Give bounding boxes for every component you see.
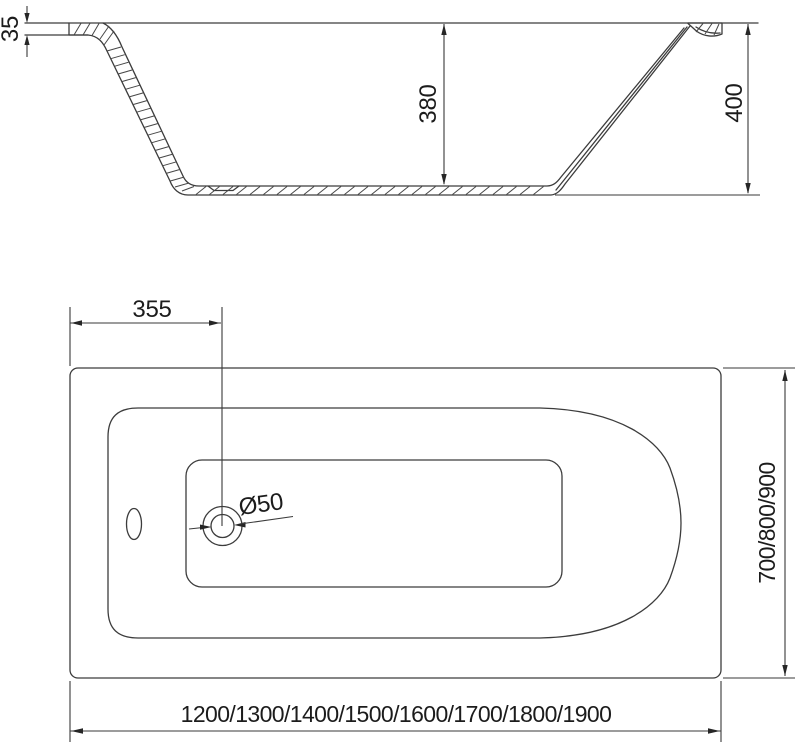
dim-length-arrow-right [708, 728, 720, 734]
dim-rim-thickness: 35 [0, 6, 30, 57]
dim-355-arrow-right [209, 320, 220, 325]
dim-overall-height: 400 [721, 24, 751, 194]
bathtub-drawing-svg: 35 380 400 [0, 0, 800, 748]
dim-400-arrow-up [745, 24, 750, 35]
dim-400-arrow-down [745, 183, 750, 194]
section-bottom-hatch [196, 187, 544, 195]
drain-arrow-right [234, 522, 246, 528]
dim-drain-offset: 355 [70, 296, 221, 366]
drain-arrow-left [200, 525, 212, 530]
dim-35-arrow-up [24, 35, 29, 45]
dim-35-arrow-down [24, 13, 29, 23]
section-outer-profile [69, 23, 690, 195]
dim-diameter-label: Ø50 [237, 488, 285, 521]
section-view: 35 380 400 [0, 6, 760, 195]
dim-380-arrow-down [441, 174, 446, 185]
dim-35-label: 35 [0, 16, 24, 42]
section-drain-recess [208, 186, 239, 191]
plan-inner-rim [108, 408, 681, 638]
dim-drain-diameter: Ø50 [189, 488, 293, 530]
dim-length-label: 1200/1300/1400/1500/1600/1700/1800/1900 [181, 701, 612, 727]
overflow-hole [127, 509, 142, 540]
dim-380-arrow-up [441, 24, 446, 35]
dim-380-label: 380 [415, 84, 442, 123]
dim-width-label: 700/800/900 [754, 462, 780, 583]
dim-width-arrow-down [782, 665, 787, 676]
dim-inner-depth: 380 [415, 24, 447, 185]
dim-length-options: 1200/1300/1400/1500/1600/1700/1800/1900 [70, 681, 721, 742]
dim-length-arrow-left [71, 728, 83, 734]
plan-view: 355 Ø50 1200/1300/1400/1500/1600/1700/18… [70, 296, 795, 742]
section-inner-profile [103, 23, 684, 186]
dim-width-options: 700/800/900 [723, 368, 795, 678]
dim-400-label: 400 [721, 83, 748, 122]
technical-drawing-canvas: 35 380 400 [0, 0, 800, 748]
dim-355-arrow-left [71, 320, 82, 325]
section-right-wall-line [556, 27, 687, 190]
plan-outer-edge [70, 368, 721, 678]
dim-width-arrow-up [782, 370, 787, 381]
dim-355-label: 355 [132, 296, 171, 323]
